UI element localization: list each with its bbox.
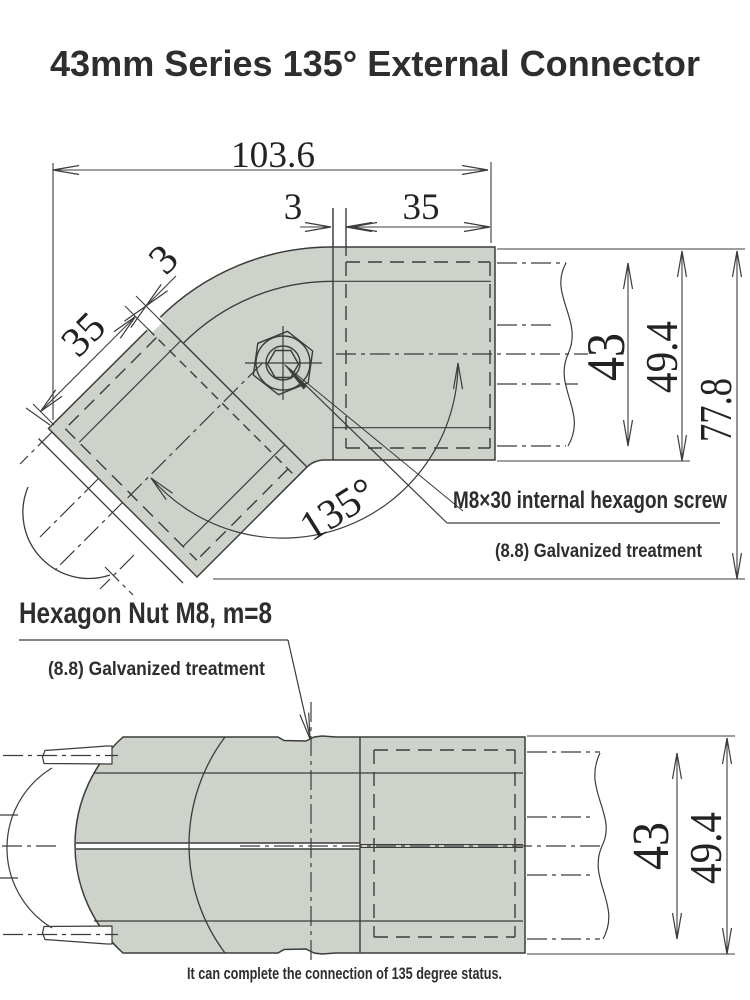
svg-text:103.6: 103.6 bbox=[231, 135, 315, 176]
svg-text:35: 35 bbox=[403, 187, 440, 228]
svg-text:It can complete the connection: It can complete the connection of 135 de… bbox=[187, 964, 502, 983]
svg-text:3: 3 bbox=[284, 187, 303, 228]
svg-text:43mm Series 135° External Conn: 43mm Series 135° External Connector bbox=[50, 43, 700, 84]
svg-text:Hexagon Nut M8, m=8: Hexagon Nut M8, m=8 bbox=[19, 597, 272, 630]
svg-text:77.8: 77.8 bbox=[690, 378, 741, 442]
svg-text:(8.8) Galvanized treatment: (8.8) Galvanized treatment bbox=[48, 659, 266, 680]
svg-text:43: 43 bbox=[623, 822, 680, 870]
svg-text:49.4: 49.4 bbox=[636, 321, 687, 393]
svg-text:49.4: 49.4 bbox=[680, 812, 731, 884]
svg-text:(8.8) Galvanized treatment: (8.8) Galvanized treatment bbox=[495, 541, 703, 562]
svg-text:43: 43 bbox=[576, 333, 636, 381]
svg-text:M8×30 internal hexagon screw: M8×30 internal hexagon screw bbox=[453, 487, 727, 514]
